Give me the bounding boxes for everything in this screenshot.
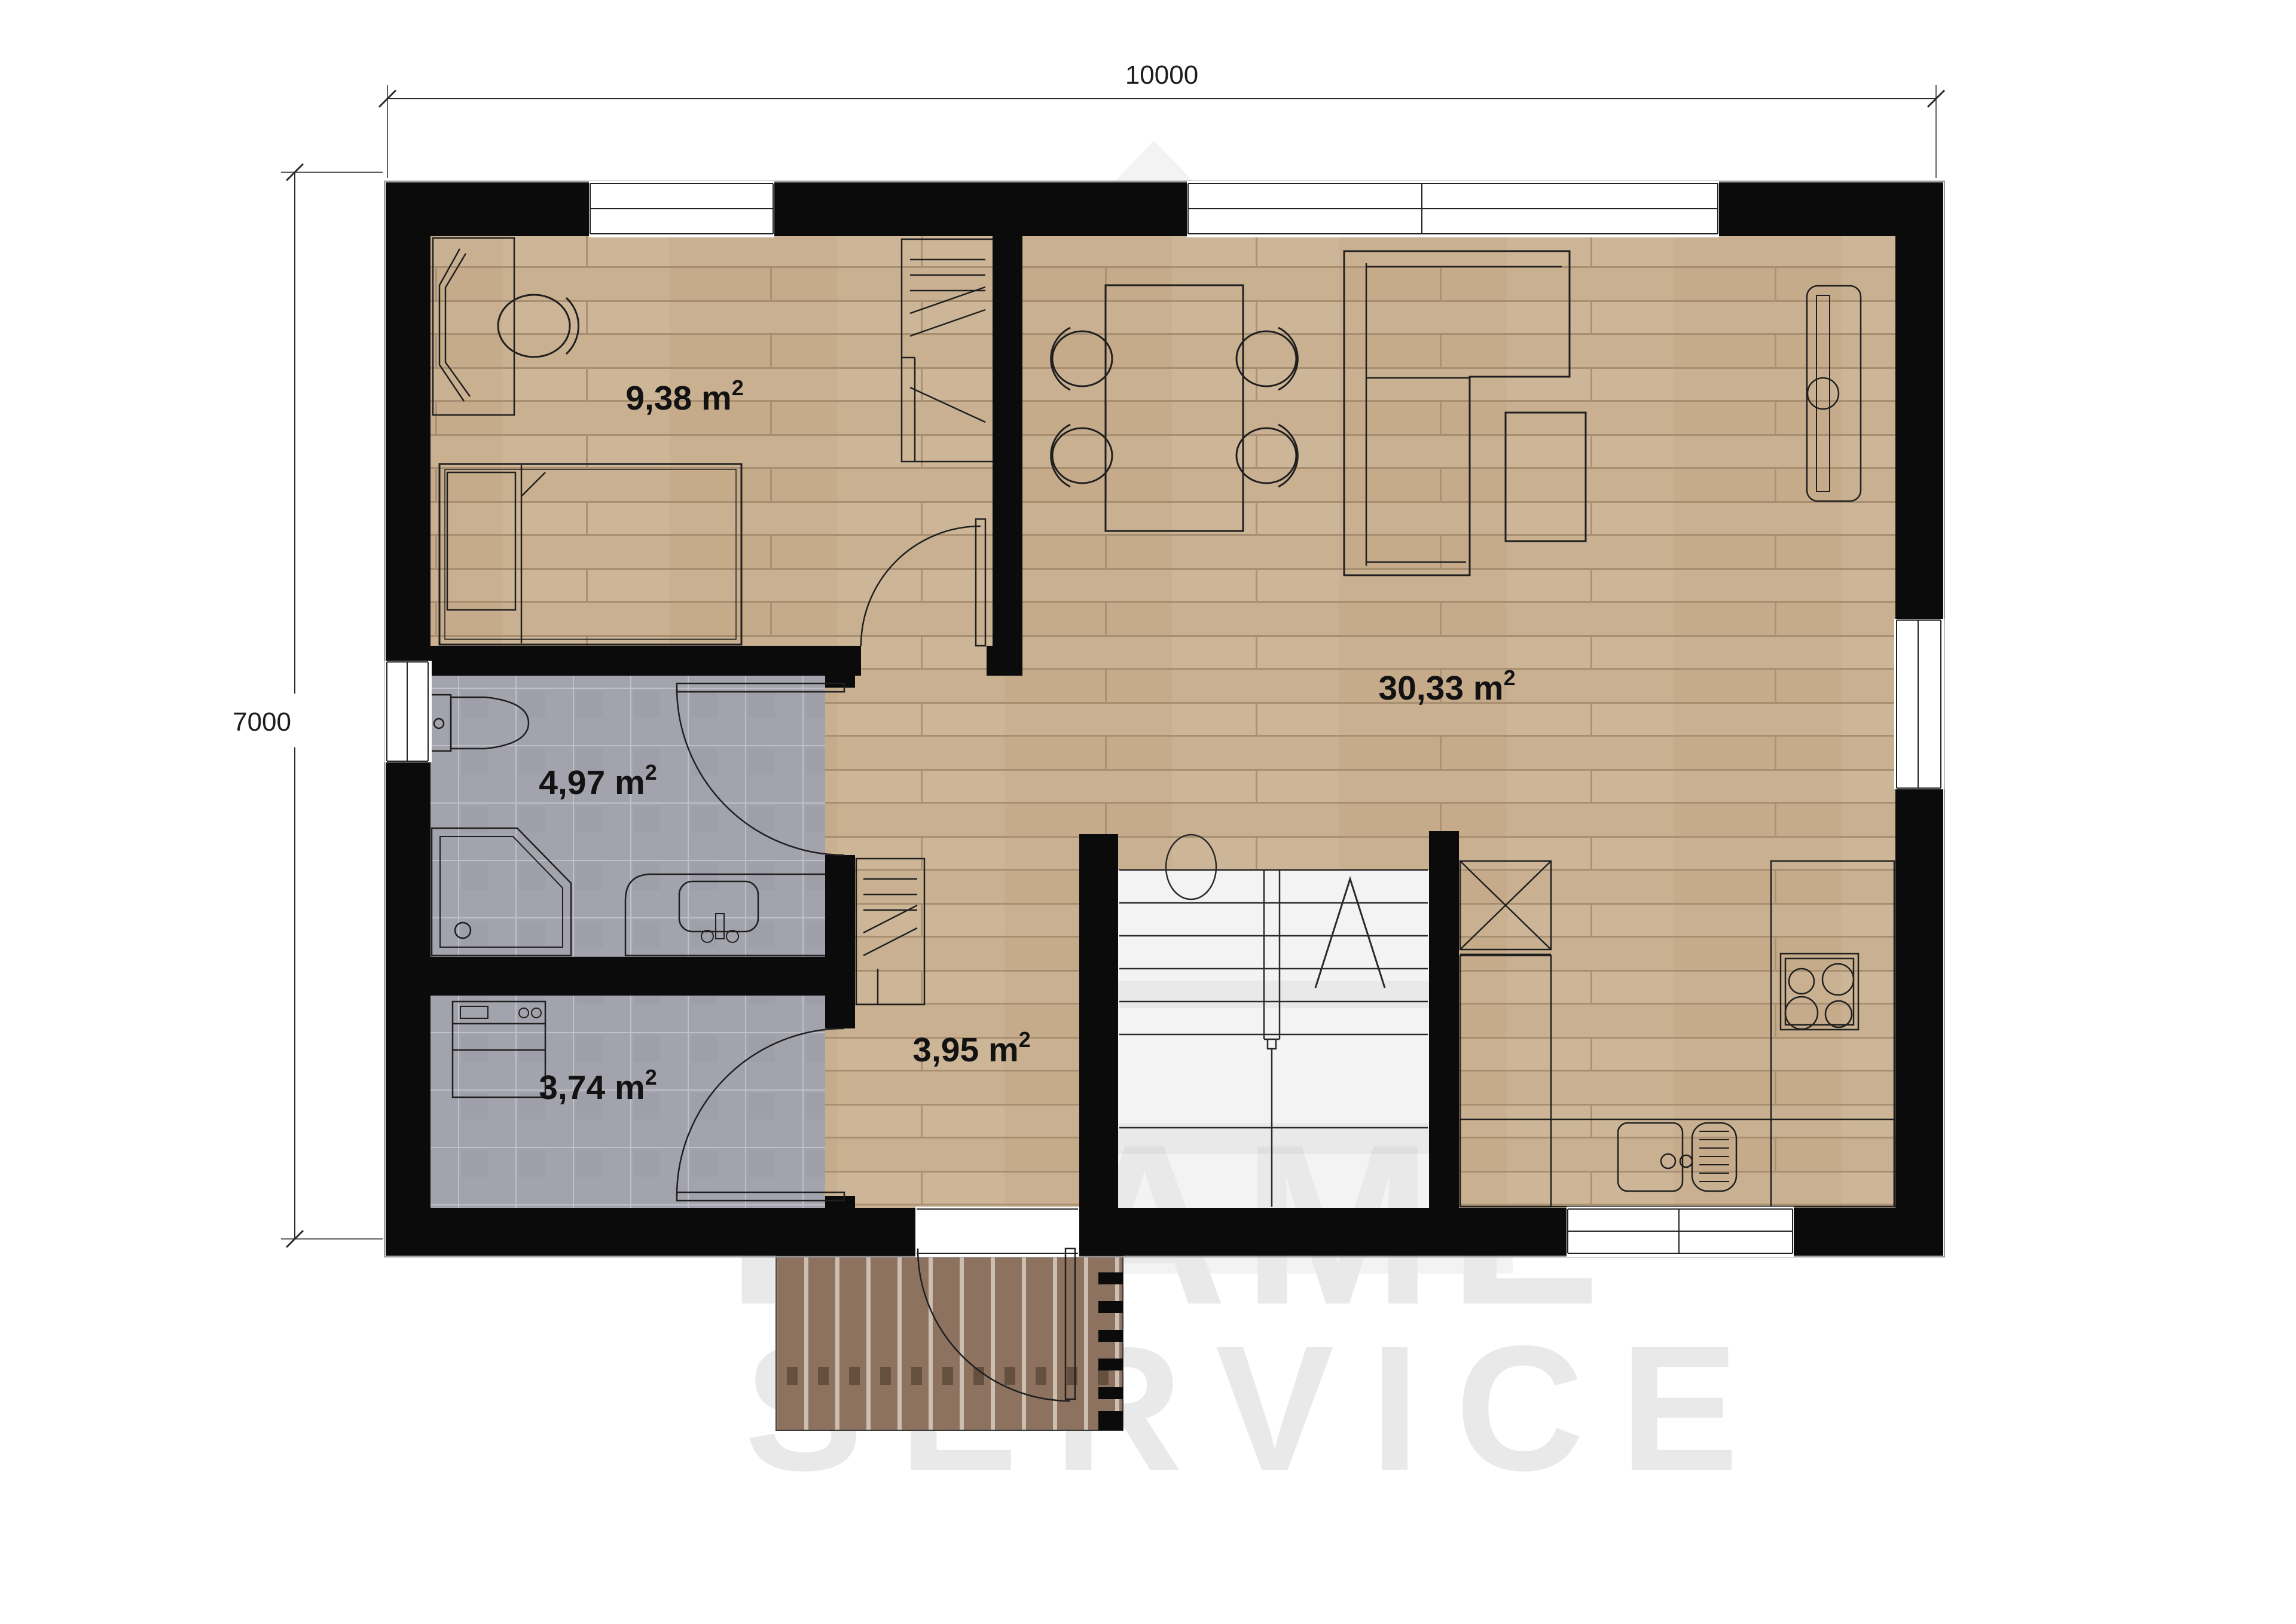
living-room-area-label: 30,33 m2 [1378, 666, 1515, 707]
stair-shadow [1118, 981, 1429, 1008]
deck [776, 1256, 1123, 1430]
left-dimension-label: 7000 [233, 707, 291, 737]
wall-hall-stub [825, 1196, 855, 1208]
wall-bathroom-utility [430, 957, 825, 996]
kitchen-window [1567, 1207, 1794, 1257]
bathroom-floor [430, 676, 825, 957]
right-window [1894, 619, 1944, 789]
bathroom-area-label: 4,97 m2 [539, 760, 657, 802]
wall-hall-bathroom [825, 855, 855, 1028]
wall-bedroom-bathroom [430, 646, 861, 676]
wall-bedroom-living [993, 236, 1022, 676]
living-room-window [1187, 181, 1719, 237]
wall-hall-stair [1079, 834, 1118, 1208]
hall-area-label: 3,95 m2 [912, 1027, 1031, 1069]
floor-plan-page: FRAME SERVICE [0, 0, 2296, 1624]
top-dimension-label: 10000 [1125, 60, 1198, 90]
entrance-opening [915, 1207, 1079, 1257]
bedroom-window [589, 181, 774, 237]
floor-plan-drawing: FRAME SERVICE [0, 0, 2296, 1624]
wall-stair-kitchen [1429, 831, 1459, 1208]
wall-hall-stub [825, 676, 855, 688]
bedroom-area-label: 9,38 m2 [625, 376, 744, 417]
entrance-porch [776, 1256, 1123, 1430]
utility-area-label: 3,74 m2 [539, 1065, 657, 1107]
bathroom-window [384, 661, 432, 762]
